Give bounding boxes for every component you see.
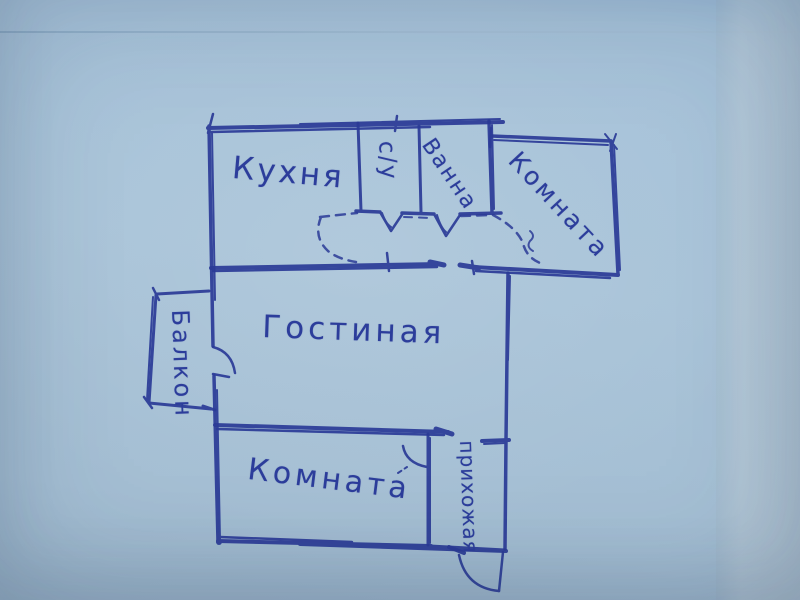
floor-plan-drawing (0, 0, 800, 600)
wc-label: с/у (373, 140, 402, 182)
balcony-label: Балкон (166, 309, 198, 419)
floor-plan-photo: Кухня с/у Ванна Комната Гостиная Балкон … (0, 0, 800, 600)
bottom-room-door-swing (403, 446, 427, 467)
living-room-label: Гостиная (262, 309, 446, 351)
corridor-dashed-opening (318, 213, 540, 263)
sketch-squiggle (529, 231, 533, 251)
hallway-stub-wall (482, 440, 509, 441)
entrance-door (449, 547, 503, 591)
hallway-label: прихожая (455, 440, 483, 554)
balcony-door-swing (213, 347, 235, 373)
